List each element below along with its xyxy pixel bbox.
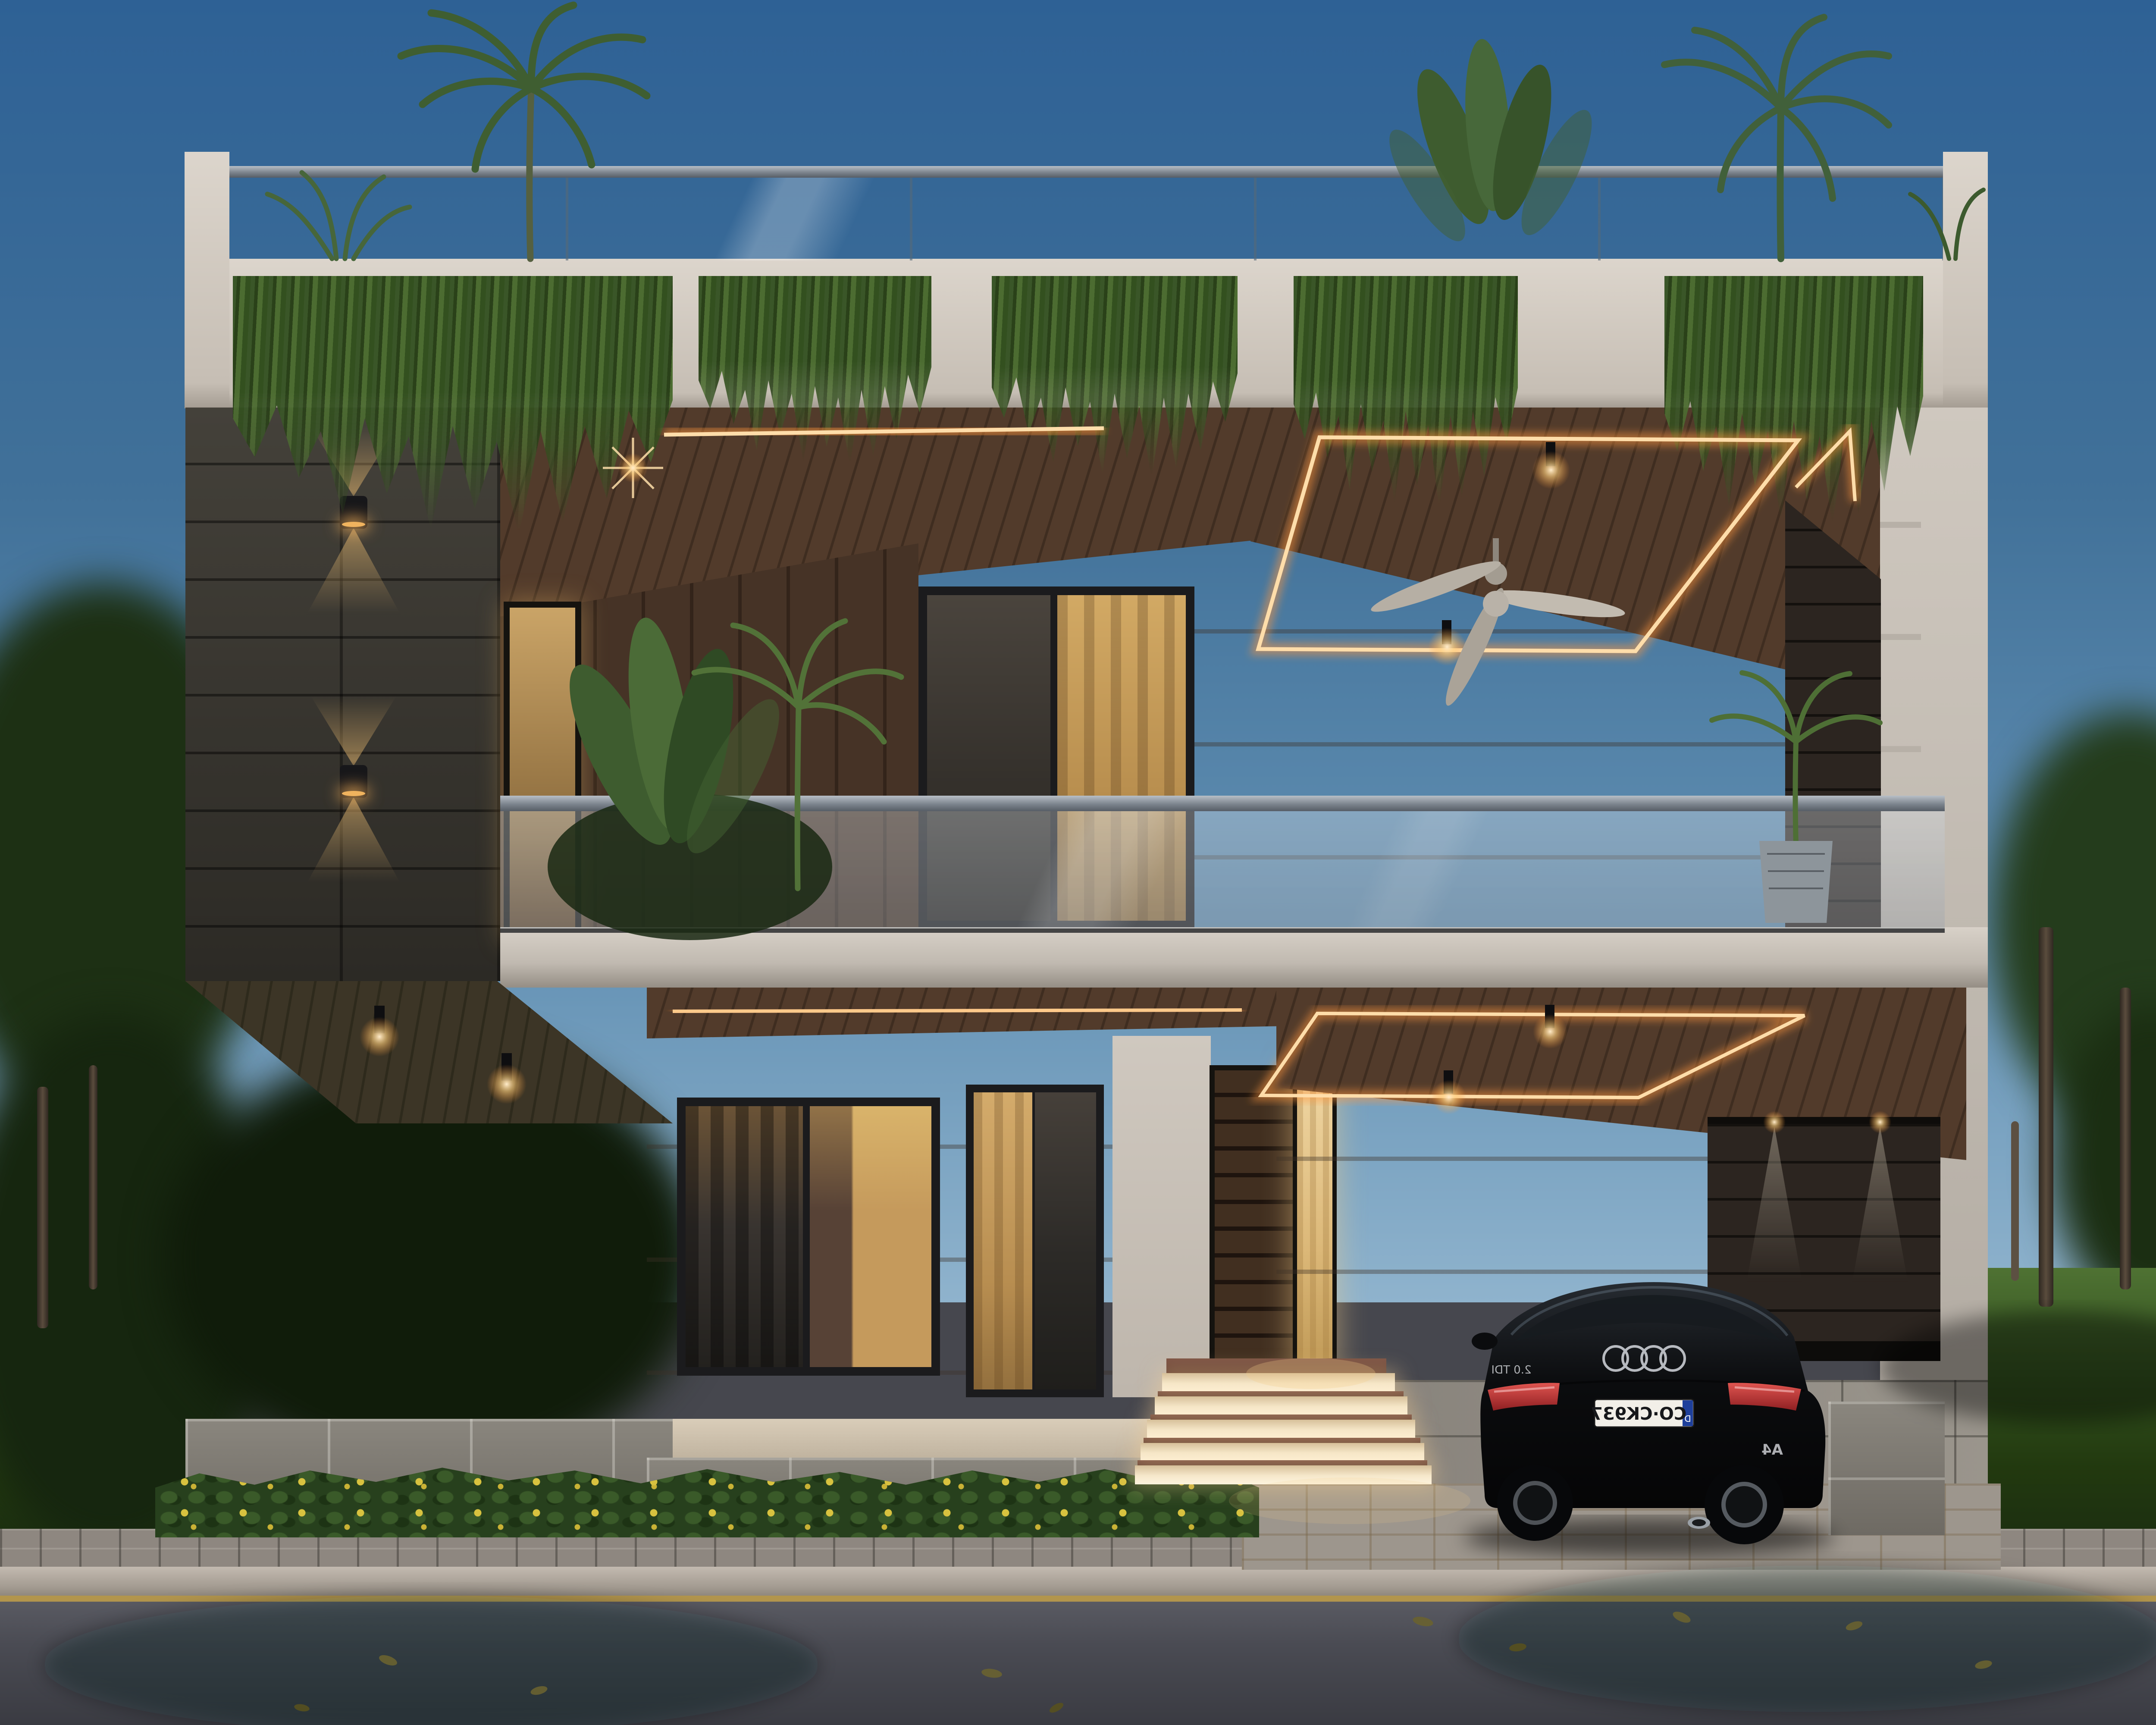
yellow-flower-bed: [155, 1466, 1259, 1537]
porch-double-window: [677, 1098, 940, 1376]
balcony-handrail: [500, 796, 1945, 811]
porch-floor: [647, 1419, 1164, 1462]
tall-door-curtain-cream: [974, 1092, 1032, 1389]
tall-door-pane-dark: [1035, 1092, 1096, 1389]
wall-sconce: [340, 765, 367, 798]
step-riser: [1147, 1420, 1415, 1439]
road: [0, 1602, 2156, 1725]
roof-corner-pillar-right: [1943, 152, 1988, 408]
step-tread: [1150, 1414, 1412, 1420]
pier-fin: [1874, 522, 1921, 528]
step-riser: [1162, 1373, 1395, 1392]
tree-trunk: [2039, 927, 2053, 1307]
step-tread: [1138, 1460, 1427, 1465]
step-tread: [1144, 1438, 1420, 1443]
tree-trunk: [37, 1087, 48, 1328]
slat-wall-base-gap: [1708, 1341, 1940, 1361]
window-pane-dark-curtain: [686, 1106, 803, 1367]
balcony-glass-railing: [500, 811, 1945, 933]
step-riser: [1155, 1396, 1407, 1415]
tree-trunk: [89, 1065, 97, 1289]
porch-tall-glass-door: [966, 1085, 1104, 1397]
entry-white-pier: [1112, 1036, 1211, 1397]
window-mullion: [803, 1106, 810, 1367]
step-landing: [1166, 1358, 1386, 1373]
roof-railing-top-rail: [224, 166, 1988, 178]
window-pane-amber: [810, 1106, 931, 1367]
step-riser: [1135, 1465, 1432, 1484]
scene: D CO·CK937 2.0 TDI A4: [0, 0, 2156, 1725]
plinth-right-corner: [1828, 1402, 1945, 1535]
roof-glass-railing: [224, 178, 1945, 260]
tree-trunk: [2120, 988, 2131, 1289]
balcony-slab-band: [500, 927, 1988, 988]
sconce-glow: [342, 522, 365, 527]
step-tread: [1158, 1391, 1404, 1396]
tree-trunk: [2011, 1121, 2019, 1281]
step-riser: [1141, 1443, 1424, 1461]
street-curb: [0, 1567, 2156, 1597]
carport-dark-slat-wall: [1708, 1117, 1940, 1355]
roof-corner-pillar-left: [185, 152, 229, 408]
sconce-glow: [342, 791, 365, 796]
